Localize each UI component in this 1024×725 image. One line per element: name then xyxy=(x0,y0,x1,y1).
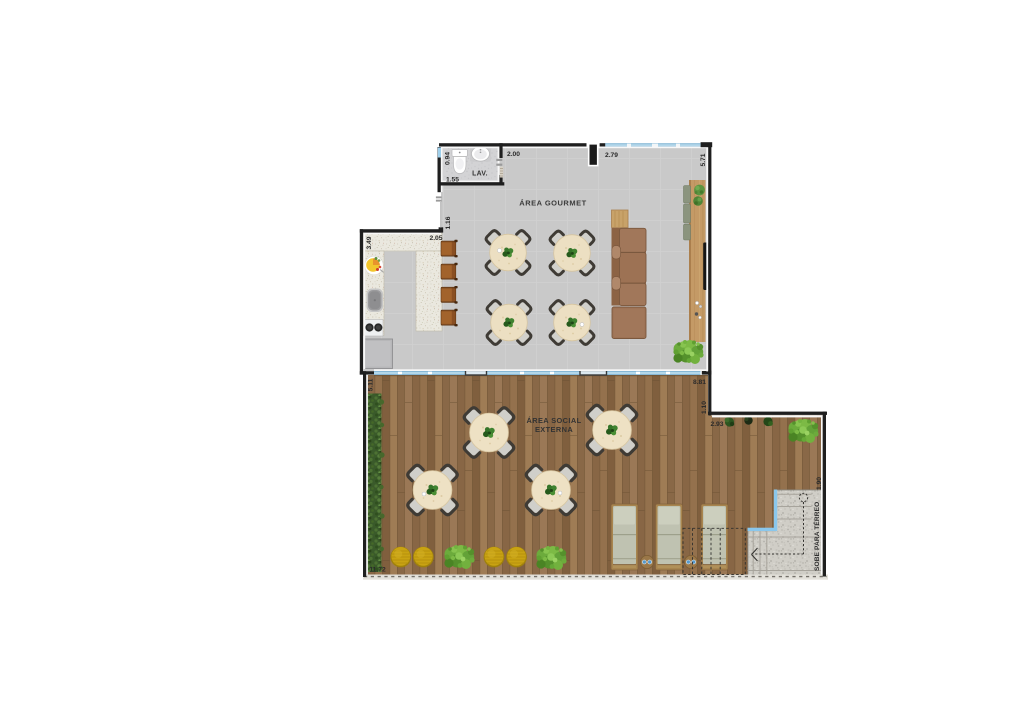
svg-text:2.05: 2.05 xyxy=(429,235,442,242)
svg-text:ÁREA SOCIAL: ÁREA SOCIAL xyxy=(526,416,581,425)
svg-text:3.49: 3.49 xyxy=(366,236,373,249)
svg-text:5.71: 5.71 xyxy=(700,153,707,166)
svg-text:0.94: 0.94 xyxy=(445,152,452,165)
svg-text:2.00: 2.00 xyxy=(507,151,520,158)
svg-text:1.90: 1.90 xyxy=(816,477,823,490)
svg-text:SOBE PARA TÉRREO: SOBE PARA TÉRREO xyxy=(812,502,821,571)
svg-text:1.10: 1.10 xyxy=(701,401,708,414)
svg-text:8.81: 8.81 xyxy=(693,379,706,386)
svg-text:1.55: 1.55 xyxy=(446,177,459,184)
svg-text:2.93: 2.93 xyxy=(710,421,723,428)
svg-text:2.79: 2.79 xyxy=(605,152,618,159)
svg-text:5.11: 5.11 xyxy=(368,378,375,391)
svg-text:LAV.: LAV. xyxy=(472,171,488,178)
svg-text:1.16: 1.16 xyxy=(445,216,452,229)
svg-text:11.72: 11.72 xyxy=(369,567,386,574)
svg-text:ÁREA GOURMET: ÁREA GOURMET xyxy=(519,199,586,208)
svg-text:EXTERNA: EXTERNA xyxy=(535,425,573,434)
